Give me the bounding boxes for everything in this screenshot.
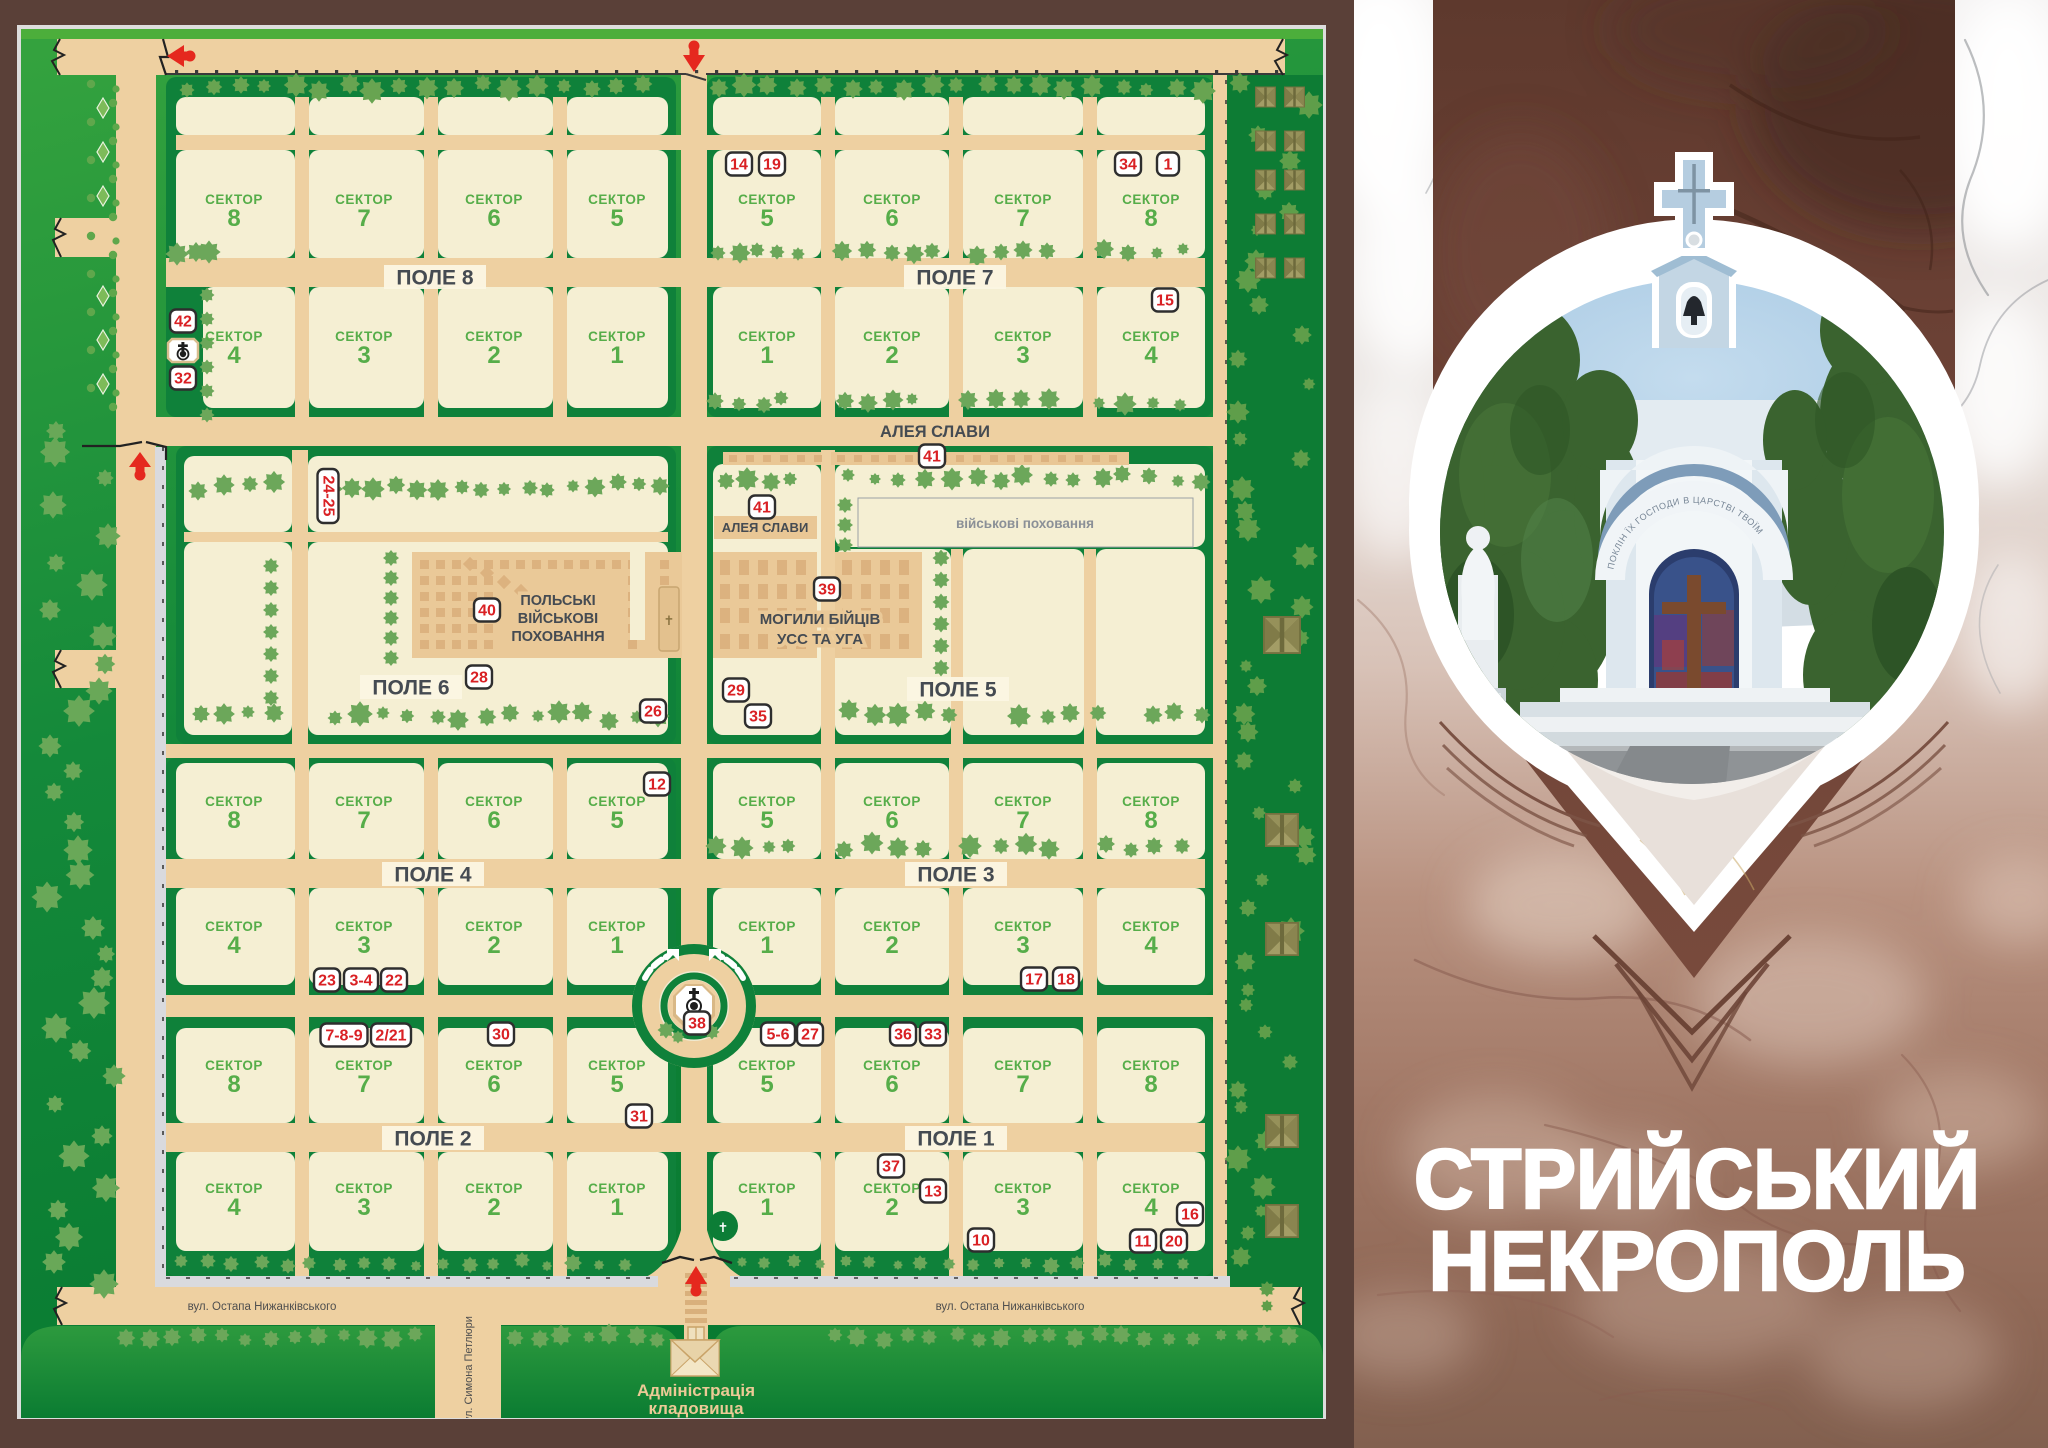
svg-text:1: 1 <box>610 932 623 959</box>
svg-text:15: 15 <box>1156 293 1174 310</box>
svg-text:ВІЙСЬКОВІ: ВІЙСЬКОВІ <box>518 609 598 627</box>
svg-text:1: 1 <box>610 342 623 369</box>
svg-text:7: 7 <box>357 807 370 834</box>
svg-text:3: 3 <box>1016 932 1029 959</box>
svg-text:7: 7 <box>1016 807 1029 834</box>
svg-text:36: 36 <box>894 1027 912 1044</box>
svg-text:23: 23 <box>318 973 336 990</box>
svg-text:2: 2 <box>487 1194 500 1221</box>
svg-text:3: 3 <box>357 342 370 369</box>
svg-text:7: 7 <box>1016 1071 1029 1098</box>
svg-text:ПОЛЕ 1: ПОЛЕ 1 <box>917 1128 994 1151</box>
svg-text:1: 1 <box>760 932 773 959</box>
svg-text:13: 13 <box>924 1184 942 1201</box>
svg-text:✝: ✝ <box>718 1220 729 1235</box>
svg-text:АЛЕЯ СЛАВИ: АЛЕЯ СЛАВИ <box>722 520 809 535</box>
svg-text:6: 6 <box>885 1071 898 1098</box>
svg-text:42: 42 <box>174 314 192 331</box>
svg-text:ПОЛЕ 4: ПОЛЕ 4 <box>394 864 471 887</box>
svg-text:26: 26 <box>644 704 662 721</box>
svg-text:2: 2 <box>487 932 500 959</box>
svg-text:11: 11 <box>1135 1234 1152 1251</box>
svg-text:5: 5 <box>610 807 623 834</box>
svg-text:ПОЛЕ 6: ПОЛЕ 6 <box>372 677 449 700</box>
svg-text:3-4: 3-4 <box>349 973 372 990</box>
svg-text:СТРИЙСЬКИЙ: СТРИЙСЬКИЙ <box>1414 1132 1980 1226</box>
svg-text:38: 38 <box>688 1016 706 1033</box>
svg-text:7-8-9: 7-8-9 <box>325 1028 362 1045</box>
svg-text:4: 4 <box>1144 1194 1158 1221</box>
svg-text:19: 19 <box>763 157 781 174</box>
svg-text:5: 5 <box>610 1071 623 1098</box>
svg-text:7: 7 <box>357 205 370 232</box>
svg-text:4: 4 <box>1144 932 1158 959</box>
svg-text:АЛЕЯ СЛАВИ: АЛЕЯ СЛАВИ <box>880 423 990 441</box>
svg-text:5: 5 <box>760 807 773 834</box>
svg-text:31: 31 <box>630 1109 648 1126</box>
svg-text:3: 3 <box>1016 342 1029 369</box>
svg-text:8: 8 <box>1144 205 1157 232</box>
svg-text:33: 33 <box>924 1027 942 1044</box>
svg-text:8: 8 <box>1144 1071 1157 1098</box>
svg-text:5: 5 <box>610 205 623 232</box>
svg-text:вул. Остапа Нижанківського: вул. Остапа Нижанківського <box>936 1301 1085 1313</box>
svg-text:2: 2 <box>885 1194 898 1221</box>
svg-text:МОГИЛИ БІЙЦІВ: МОГИЛИ БІЙЦІВ <box>760 610 881 628</box>
svg-text:34: 34 <box>1119 157 1137 174</box>
svg-text:40: 40 <box>478 603 496 620</box>
svg-text:2: 2 <box>885 932 898 959</box>
svg-text:3: 3 <box>357 1194 370 1221</box>
svg-text:16: 16 <box>1181 1207 1199 1224</box>
svg-text:8: 8 <box>1144 807 1157 834</box>
svg-text:1: 1 <box>760 342 773 369</box>
svg-text:1: 1 <box>1164 157 1173 174</box>
svg-text:військові поховання: військові поховання <box>956 516 1094 531</box>
svg-text:3: 3 <box>357 932 370 959</box>
svg-text:УСС ТА УГА: УСС ТА УГА <box>777 631 863 648</box>
svg-text:4: 4 <box>1144 342 1158 369</box>
svg-text:6: 6 <box>885 205 898 232</box>
svg-text:6: 6 <box>487 807 500 834</box>
svg-text:ПОХОВАННЯ: ПОХОВАННЯ <box>511 629 604 645</box>
svg-text:НЕКРОПОЛЬ: НЕКРОПОЛЬ <box>1429 1214 1966 1308</box>
svg-text:22: 22 <box>385 973 403 990</box>
svg-text:14: 14 <box>730 157 748 174</box>
svg-text:5-6: 5-6 <box>766 1027 789 1044</box>
svg-text:7: 7 <box>357 1071 370 1098</box>
svg-text:6: 6 <box>487 1071 500 1098</box>
svg-text:5: 5 <box>760 1071 773 1098</box>
svg-text:7: 7 <box>1016 205 1029 232</box>
svg-text:ПОЛЬСЬКІ: ПОЛЬСЬКІ <box>520 593 595 609</box>
svg-text:20: 20 <box>1165 1234 1183 1251</box>
svg-text:3: 3 <box>1016 1194 1029 1221</box>
svg-text:ПОЛЕ 2: ПОЛЕ 2 <box>394 1128 471 1151</box>
svg-text:6: 6 <box>487 205 500 232</box>
svg-text:39: 39 <box>818 582 836 599</box>
svg-text:2: 2 <box>885 342 898 369</box>
svg-text:4: 4 <box>227 1194 241 1221</box>
svg-text:кладовища: кладовища <box>648 1399 744 1418</box>
svg-text:Адміністрація: Адміністрація <box>637 1381 755 1400</box>
svg-text:10: 10 <box>972 1233 990 1250</box>
svg-text:5: 5 <box>760 205 773 232</box>
svg-text:32: 32 <box>174 371 192 388</box>
svg-text:17: 17 <box>1025 972 1043 989</box>
svg-text:8: 8 <box>227 1071 240 1098</box>
svg-text:вул. Остапа Нижанківського: вул. Остапа Нижанківського <box>188 1301 337 1313</box>
svg-text:ПОЛЕ 5: ПОЛЕ 5 <box>919 679 996 702</box>
svg-text:41: 41 <box>753 500 771 517</box>
svg-text:2/21: 2/21 <box>375 1028 406 1045</box>
svg-text:8: 8 <box>227 807 240 834</box>
svg-text:ПОЛЕ 7: ПОЛЕ 7 <box>916 267 993 290</box>
svg-text:12: 12 <box>648 777 666 794</box>
svg-text:8: 8 <box>227 205 240 232</box>
svg-text:6: 6 <box>885 807 898 834</box>
svg-text:1: 1 <box>610 1194 623 1221</box>
svg-text:24-25: 24-25 <box>320 476 337 517</box>
svg-text:4: 4 <box>227 342 241 369</box>
svg-text:27: 27 <box>801 1027 819 1044</box>
svg-text:4: 4 <box>227 932 241 959</box>
svg-text:✝: ✝ <box>664 613 675 628</box>
svg-text:29: 29 <box>727 683 745 700</box>
svg-text:28: 28 <box>470 670 488 687</box>
svg-text:вул. Симона Петлюри: вул. Симона Петлюри <box>463 1316 475 1428</box>
svg-text:ПОЛЕ 8: ПОЛЕ 8 <box>396 267 473 290</box>
svg-text:ПОЛЕ 3: ПОЛЕ 3 <box>917 864 994 887</box>
svg-text:37: 37 <box>882 1159 900 1176</box>
svg-text:30: 30 <box>492 1027 510 1044</box>
svg-text:41: 41 <box>923 449 941 466</box>
svg-text:35: 35 <box>749 709 767 726</box>
svg-text:18: 18 <box>1057 972 1075 989</box>
svg-text:2: 2 <box>487 342 500 369</box>
svg-text:1: 1 <box>760 1194 773 1221</box>
